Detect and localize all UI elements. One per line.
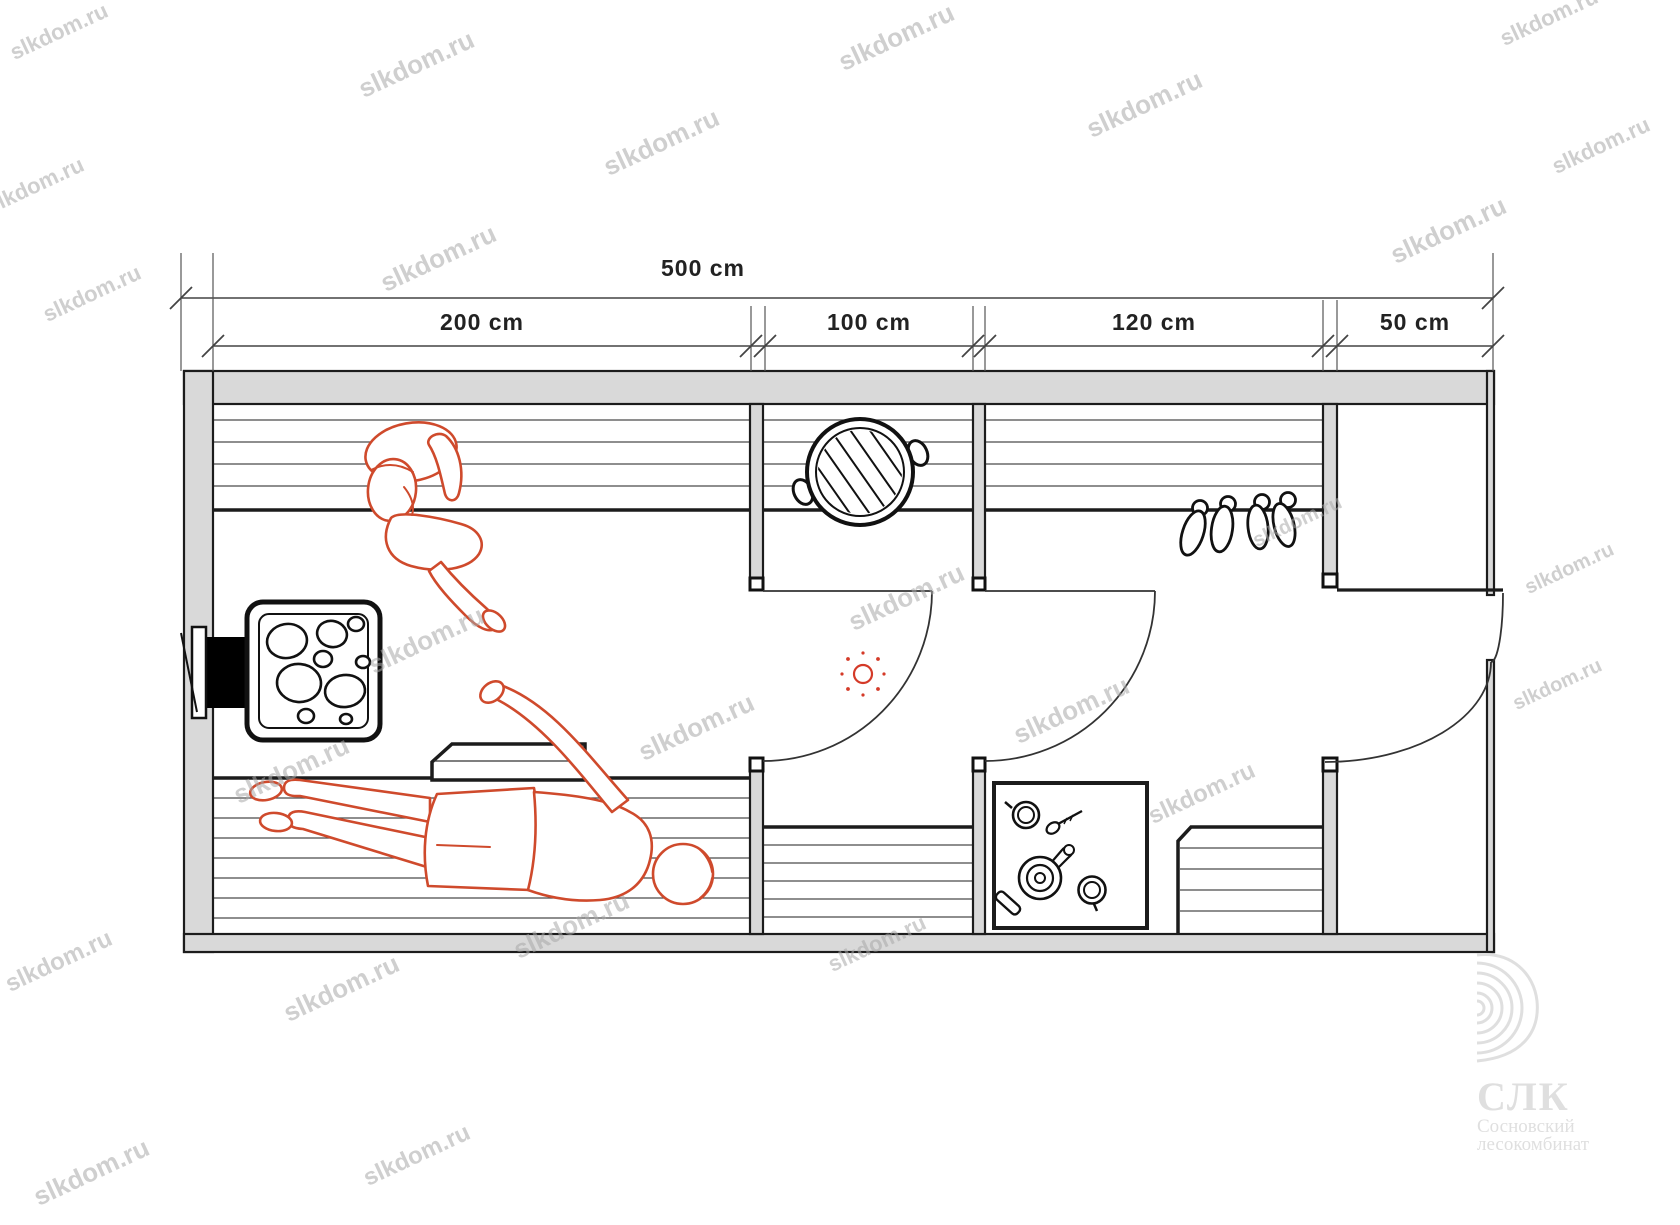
watermark-text: slkdom.ru [29, 1132, 154, 1212]
washroom-bottom-bench [763, 827, 973, 917]
dimension-label-total: 500 cm [661, 255, 745, 281]
firebox-door-frame [192, 627, 206, 718]
restroom-bench [1178, 827, 1323, 934]
tree-rings-icon [1477, 955, 1537, 1061]
watermark-text: slkdom.ru [359, 1119, 474, 1192]
watermark-text: slkdom.ru [1496, 0, 1602, 51]
restroom-top-bench [985, 420, 1323, 510]
logo-abbr: СЛК [1477, 1074, 1570, 1119]
dimension-label-washroom: 100 cm [827, 309, 911, 335]
floor-plan-drawing: 500 cm 200 cm 100 cm 120 cm 50 cm slkdom… [0, 0, 1680, 1225]
company-logo: СЛК Сосновский лесокомбинат [1477, 955, 1590, 1155]
dimension-label-restroom: 120 cm [1112, 309, 1196, 335]
watermark-text: slkdom.ru [6, 0, 112, 65]
watermark-text: slkdom.ru [1144, 757, 1259, 830]
dimension-label-closet: 50 cm [1380, 309, 1450, 335]
watermark-text: slkdom.ru [1548, 112, 1654, 179]
door-swing-restroom [985, 591, 1155, 761]
logo-name-line2: лесокомбинат [1477, 1134, 1590, 1155]
dimension-label-sauna: 200 cm [440, 309, 524, 335]
firebox-tunnel [206, 637, 248, 708]
table [994, 783, 1147, 928]
watermark-text: slkdom.ru [376, 218, 501, 298]
watermark-layer: slkdom.ruslkdom.ruslkdom.ruslkdom.ruslkd… [0, 0, 1654, 1212]
basin [789, 411, 931, 533]
watermark-text: slkdom.ru [1, 925, 116, 998]
light-symbol-icon [840, 651, 885, 696]
watermark-text: slkdom.ru [1386, 190, 1511, 270]
watermark-text: slkdom.ru [39, 260, 145, 327]
watermark-text: slkdom.ru [1510, 654, 1606, 714]
watermark-text: slkdom.ru [279, 948, 404, 1028]
watermark-text: slkdom.ru [354, 24, 479, 104]
watermark-text: slkdom.ru [844, 557, 969, 637]
door-swing-entrance [1325, 593, 1503, 762]
watermark-text: slkdom.ru [1522, 538, 1618, 598]
watermark-text: slkdom.ru [834, 0, 959, 77]
watermark-text: slkdom.ru [0, 152, 88, 219]
watermark-text: slkdom.ru [1082, 64, 1207, 144]
watermark-text: slkdom.ru [634, 687, 759, 767]
floor-plan-page: 500 cm 200 cm 100 cm 120 cm 50 cm slkdom… [0, 0, 1680, 1225]
watermark-text: slkdom.ru [599, 102, 724, 182]
sauna-top-bench [213, 420, 750, 510]
person-sitting-figure [361, 415, 509, 635]
